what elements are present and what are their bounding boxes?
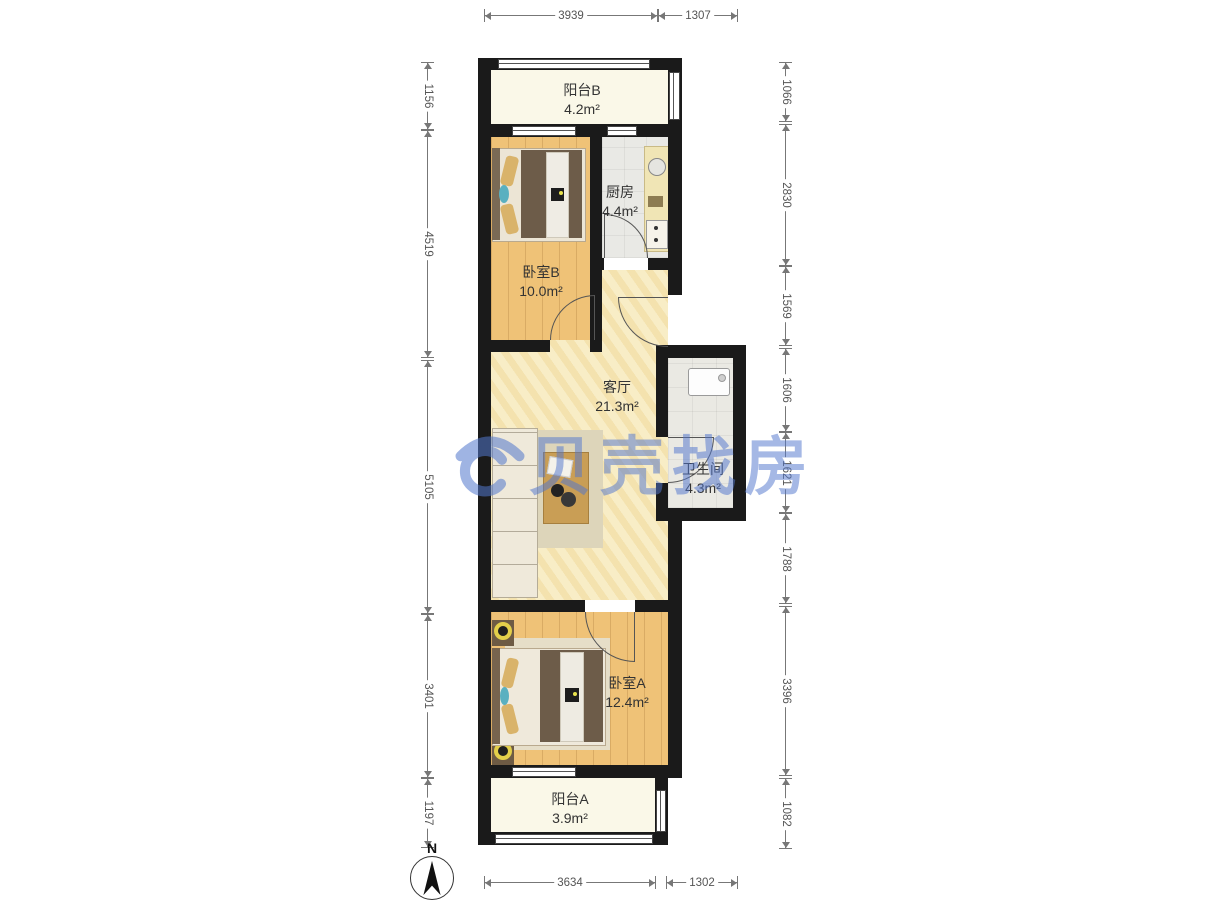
dim-right-3: 1569 (779, 266, 792, 346)
bedroom-a-tv-light (573, 692, 577, 696)
bedroom-b-balcony-door-window (512, 126, 576, 136)
dim-right-7: 3396 (779, 606, 792, 776)
room-area: 21.3m² (595, 398, 639, 414)
room-label-balcony-b: 阳台B 4.2m² (563, 81, 600, 119)
room-area: 10.0m² (519, 283, 563, 299)
dim-value: 1066 (780, 76, 792, 108)
kitchen-pass-window (607, 126, 637, 136)
bathroom-washer (688, 368, 730, 396)
room-name: 卧室A (608, 675, 645, 691)
wall-kitchen-bottom-left (590, 258, 604, 270)
room-area: 12.4m² (605, 694, 649, 710)
room-name: 厨房 (606, 184, 634, 200)
dim-value: 2830 (780, 179, 792, 211)
room-area: 3.9m² (552, 810, 588, 826)
dim-value: 1307 (682, 10, 714, 22)
kitchen-cabinet (646, 220, 668, 249)
watermark-text: 贝壳找房 (528, 416, 816, 508)
room-label-living: 客厅 21.3m² (595, 378, 639, 416)
bedroom-a-bed-headboard (492, 648, 500, 744)
wall-bedroom-a-top-right (635, 600, 682, 612)
dim-right-2: 2830 (779, 124, 792, 266)
dim-right-1: 1066 (779, 62, 792, 122)
room-label-balcony-a: 阳台A 3.9m² (551, 790, 588, 828)
room-label-bedroom-a: 卧室A 12.4m² (605, 674, 649, 712)
wall-bedroom-b-bottom-left (478, 340, 550, 352)
dim-value: 1197 (422, 798, 434, 829)
room-label-kitchen: 厨房 4.4m² (602, 183, 638, 221)
dim-top-1: 3939 (484, 9, 658, 22)
dim-value: 1788 (780, 543, 792, 575)
bedroom-a-lamp (494, 622, 512, 640)
dim-left-4: 3401 (421, 614, 434, 778)
dim-value: 1606 (780, 374, 792, 406)
dim-bottom-2: 1302 (666, 876, 738, 889)
bedroom-a-cushion (500, 687, 509, 705)
dim-value: 5105 (422, 471, 434, 503)
kitchen-sink (648, 158, 666, 176)
dim-value: 1156 (422, 81, 434, 112)
dim-value: 3396 (780, 675, 792, 707)
dim-left-5: 1197 (421, 778, 434, 848)
kitchen-stove (648, 196, 663, 207)
dim-value: 1302 (686, 877, 718, 889)
kitchen-cabinet-knob (654, 226, 658, 230)
wall-balcony-b-bottom (478, 124, 682, 137)
balcony-a-right-window (656, 790, 666, 832)
dim-left-3: 5105 (421, 360, 434, 614)
room-name: 客厅 (603, 379, 631, 395)
room-area: 4.4m² (602, 203, 638, 219)
watermark-logo-icon (444, 412, 536, 504)
dim-left-2: 4519 (421, 130, 434, 358)
wall-bedroom-b-bottom-right (595, 340, 602, 352)
dim-value: 3401 (422, 680, 434, 712)
dim-left-1: 1156 (421, 62, 434, 130)
dim-value: 1082 (780, 798, 792, 830)
room-name: 阳台B (563, 82, 600, 98)
wall-bathroom-bottom (656, 508, 746, 521)
bedroom-b-cushion (499, 185, 509, 203)
dim-value: 3634 (554, 877, 586, 889)
wall-bedroom-a-bottom (478, 765, 682, 778)
wall-bedroom-a-top-left (478, 600, 585, 612)
wall-right-lower (668, 521, 682, 778)
bathroom-washer-dial (718, 374, 726, 382)
north-arrow-icon (410, 856, 454, 900)
balcony-a-bottom-window (495, 834, 653, 844)
wall-kitchen-bottom-right (648, 258, 682, 270)
dim-top-2: 1307 (658, 9, 738, 22)
balcony-b-top-window (498, 59, 650, 69)
dim-right-6: 1788 (779, 513, 792, 604)
dim-value: 1569 (780, 290, 792, 322)
compass-north-label: N (421, 840, 443, 856)
dim-value: 4519 (422, 228, 434, 260)
dim-right-8: 1082 (779, 778, 792, 849)
dim-value: 3939 (555, 10, 587, 22)
bedroom-b-tv-light (559, 191, 563, 195)
floor-plan: 阳台B 4.2m² 厨房 4.4m² 卧室B 10.0m² 客厅 21.3m² … (0, 0, 1211, 902)
room-name: 卧室B (522, 264, 559, 280)
dim-bottom-1: 3634 (484, 876, 656, 889)
room-label-bedroom-b: 卧室B 10.0m² (519, 263, 563, 301)
bedroom-a-balcony-door-window (512, 767, 576, 777)
kitchen-cabinet-knob (654, 238, 658, 242)
room-area: 4.2m² (564, 101, 600, 117)
balcony-b-right-window (669, 72, 680, 120)
bedroom-a-tv-panel (565, 688, 579, 702)
room-name: 阳台A (551, 791, 588, 807)
